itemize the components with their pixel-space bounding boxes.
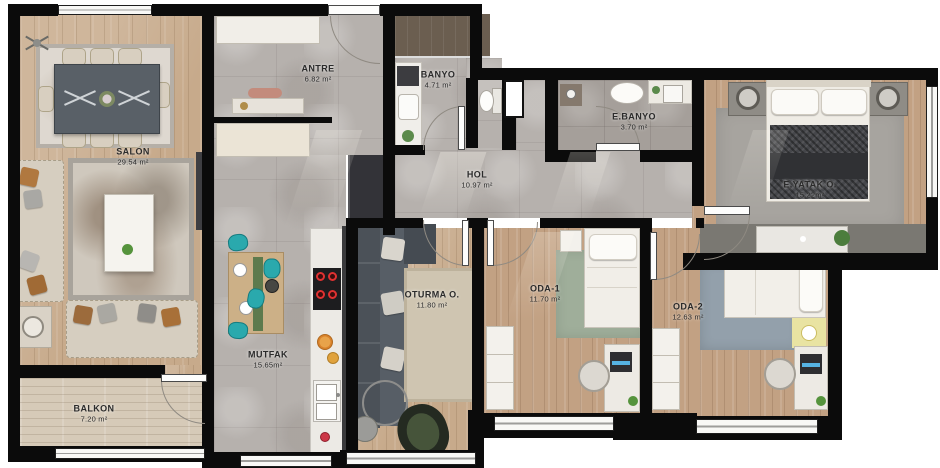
shaft — [504, 80, 524, 118]
oda2-door — [650, 232, 657, 280]
wall — [613, 413, 697, 440]
oturma-rug — [404, 268, 476, 402]
console-bowl — [240, 102, 248, 110]
desk-chair — [578, 360, 610, 392]
kitchen-sink — [313, 380, 341, 422]
wall — [8, 365, 165, 378]
sofa-pillow — [73, 305, 94, 326]
entry-closet — [216, 16, 320, 44]
wall — [470, 68, 938, 80]
plant-icon — [834, 230, 850, 246]
sofa-pillow — [96, 302, 117, 323]
laptop-icon — [800, 354, 822, 374]
banyo-door — [458, 106, 465, 150]
wall — [466, 78, 478, 148]
side-table-tray — [22, 316, 44, 338]
cooktop — [313, 268, 341, 310]
master-bed — [766, 78, 870, 202]
ebanyo-door — [596, 143, 640, 151]
wall — [214, 117, 332, 123]
wall — [545, 150, 596, 162]
fruit-bowl — [317, 334, 333, 350]
mirror-icon — [876, 86, 900, 110]
wall — [540, 218, 640, 228]
window — [494, 416, 614, 431]
wall — [692, 80, 704, 206]
floor-plan: SALON 29.54 m² ANTRE 6.82 m² BANYO 4.71 … — [0, 0, 940, 468]
window — [696, 419, 818, 434]
sofa-pillow — [380, 346, 406, 372]
plant-icon — [652, 86, 660, 94]
balcony-rail-window — [55, 448, 205, 459]
wall — [640, 150, 692, 162]
wall — [828, 262, 842, 440]
balkon-door — [161, 374, 207, 382]
window — [240, 455, 332, 467]
plant-icon — [816, 396, 826, 406]
oda1-nightstand — [560, 230, 582, 252]
sofa-pillow — [380, 290, 405, 315]
kitchen-cabinets — [216, 123, 310, 157]
window — [926, 86, 938, 198]
vanity-shelf — [397, 66, 419, 86]
oda1-bed — [584, 228, 640, 328]
desk-chair — [764, 358, 796, 390]
kitchen-chair — [264, 259, 281, 279]
window — [58, 5, 152, 15]
window — [346, 452, 476, 465]
oda1-door — [487, 220, 494, 266]
chandelier-icon — [24, 32, 50, 54]
oturma-door — [462, 220, 469, 266]
wall — [346, 218, 358, 452]
wall — [347, 218, 423, 228]
plant-icon — [628, 396, 638, 406]
mirror-icon — [736, 86, 760, 110]
fruit-bowl — [327, 352, 339, 364]
flower-centerpiece — [99, 91, 115, 107]
console-vase — [248, 88, 282, 98]
sofa-pillow — [381, 237, 406, 262]
washbasin — [398, 94, 419, 120]
oda2-wardrobe — [652, 328, 680, 410]
wall — [8, 4, 20, 456]
oda1-wardrobe — [486, 326, 514, 410]
wall — [383, 14, 395, 235]
laptop-icon — [610, 352, 632, 372]
entry-door — [328, 5, 380, 15]
wall — [380, 4, 482, 16]
ensuite-tub — [610, 82, 644, 104]
table-plant-decor — [122, 244, 133, 255]
eyatak-door — [704, 206, 750, 215]
sofa-pillow — [161, 307, 182, 328]
toilet-bowl — [479, 90, 494, 112]
dining-chair — [38, 86, 54, 112]
wall — [383, 145, 425, 155]
sofa-pillow — [137, 303, 157, 323]
oda2-mat — [792, 318, 826, 348]
coffee-table — [104, 194, 154, 272]
wall — [152, 4, 328, 16]
stool-red — [320, 432, 330, 442]
wall — [472, 218, 484, 414]
shower-head-icon — [566, 89, 576, 99]
sofa-pillow — [23, 189, 43, 209]
plant-icon — [402, 130, 414, 142]
wall — [696, 218, 704, 228]
dining-table — [54, 64, 160, 134]
sofa-pillow — [18, 166, 39, 187]
